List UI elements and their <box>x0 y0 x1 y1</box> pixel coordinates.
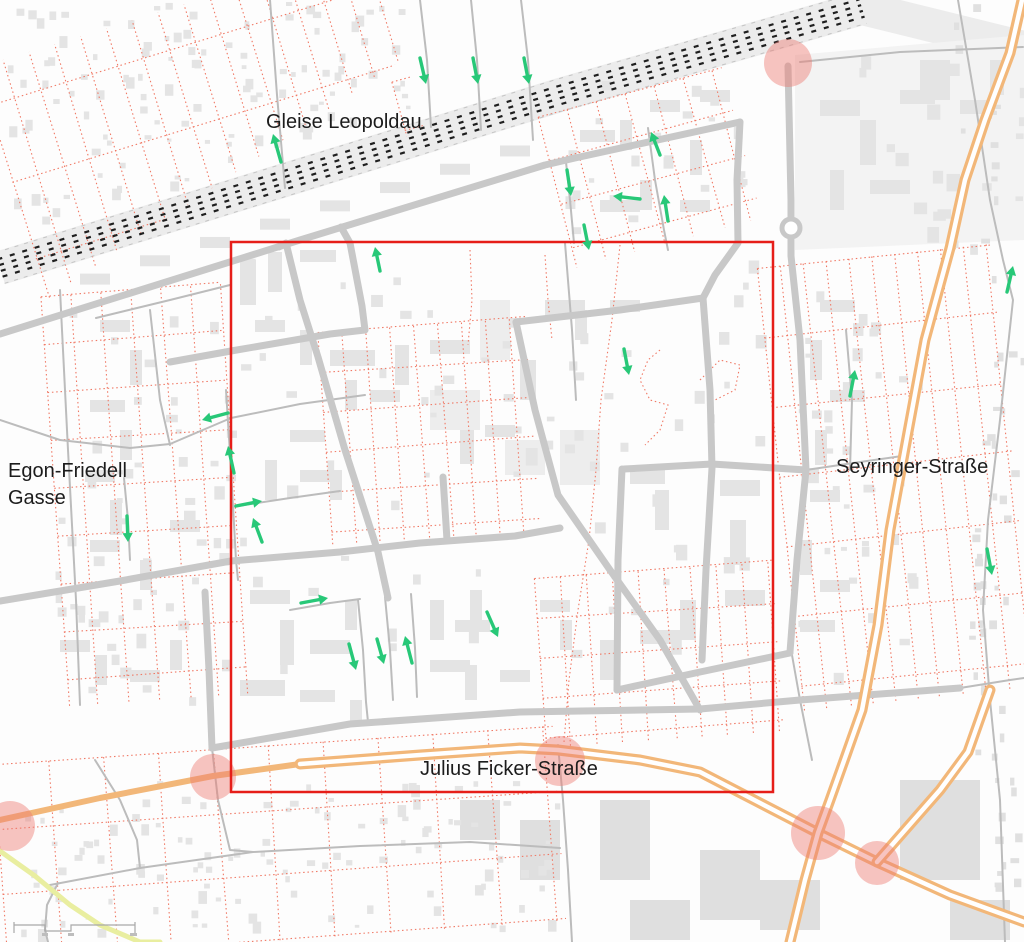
small-building <box>192 60 200 68</box>
small-building <box>32 194 41 206</box>
tree-plot <box>991 176 997 181</box>
major-road <box>702 298 712 660</box>
small-building <box>265 316 273 324</box>
scale-bar-label-mark <box>130 933 137 936</box>
small-building <box>84 111 89 119</box>
building <box>60 640 90 652</box>
building-large <box>505 440 545 475</box>
small-building <box>805 338 811 344</box>
small-building <box>328 798 333 802</box>
building <box>560 620 572 650</box>
small-building <box>150 590 157 595</box>
tree-plot <box>995 837 1004 845</box>
building <box>110 500 122 535</box>
small-building <box>834 301 844 308</box>
small-building <box>255 135 263 146</box>
flow-arrow-head <box>660 195 670 205</box>
small-building <box>367 905 373 914</box>
small-building <box>937 209 951 218</box>
street-label-gleise-leopoldau: Gleise Leopoldau <box>266 112 422 133</box>
small-building <box>193 924 198 927</box>
intersection-marker <box>190 754 236 800</box>
small-building <box>170 316 179 327</box>
flow-arrow-head <box>985 565 995 575</box>
flow-arrow-shaft <box>377 256 380 271</box>
small-building <box>260 353 266 361</box>
tree-plot <box>1009 351 1018 357</box>
small-building <box>546 841 551 845</box>
tree-plot <box>981 239 990 244</box>
major-road <box>516 298 703 322</box>
small-building <box>185 178 190 181</box>
small-building <box>589 178 594 182</box>
building <box>370 390 400 402</box>
small-building <box>182 121 190 127</box>
small-building <box>614 204 622 212</box>
small-building <box>948 64 960 76</box>
small-building <box>98 855 105 863</box>
flow-arrow-shaft <box>665 204 668 221</box>
footpath-layer <box>0 851 160 942</box>
small-building <box>834 673 844 685</box>
tree-plot <box>992 441 996 449</box>
building <box>268 252 282 292</box>
small-building <box>341 282 346 289</box>
small-building <box>178 621 189 631</box>
parcel-line <box>0 0 400 106</box>
small-building <box>94 556 105 566</box>
small-building <box>286 391 297 398</box>
small-building <box>402 784 408 792</box>
small-building <box>25 120 32 131</box>
flow-arrow-shaft <box>987 549 990 566</box>
small-building <box>322 862 328 868</box>
tree-plot <box>995 883 1002 888</box>
small-building <box>34 883 40 888</box>
small-building <box>643 192 648 197</box>
parcel-line <box>545 720 785 739</box>
small-building <box>245 79 253 89</box>
flow-arrow-head <box>622 365 632 375</box>
small-building <box>8 65 14 73</box>
small-building <box>852 101 859 107</box>
flow-arrow-shaft <box>420 58 424 75</box>
small-building <box>117 186 122 193</box>
small-building <box>193 867 198 872</box>
small-building <box>53 208 61 217</box>
small-building <box>663 579 670 585</box>
small-building <box>504 801 512 806</box>
small-building <box>69 91 74 97</box>
small-building <box>485 870 494 882</box>
small-building <box>264 802 273 808</box>
building <box>395 345 409 385</box>
flow-arrow-shaft <box>256 526 262 542</box>
building <box>440 164 470 175</box>
tree-plot <box>973 4 981 12</box>
small-building <box>555 803 560 809</box>
tree-plot <box>1010 858 1019 863</box>
small-building <box>887 144 895 152</box>
small-building <box>302 65 307 72</box>
small-building <box>154 6 160 10</box>
small-building <box>825 548 831 554</box>
building <box>310 640 350 654</box>
building <box>330 470 342 500</box>
building <box>630 470 665 484</box>
small-building <box>200 802 206 809</box>
parcel-line <box>377 738 391 933</box>
tree-plot <box>970 621 975 629</box>
tree-plot <box>975 750 981 756</box>
small-building <box>280 663 287 674</box>
tree-plot <box>954 23 959 30</box>
building-large <box>480 300 510 360</box>
small-building <box>143 799 151 807</box>
building <box>280 620 294 665</box>
small-building <box>371 295 383 307</box>
small-building <box>933 171 943 184</box>
small-building <box>202 923 207 927</box>
building <box>430 340 470 354</box>
small-building <box>145 135 152 139</box>
small-building <box>189 697 196 706</box>
minor-road <box>96 285 230 318</box>
small-building <box>214 538 221 548</box>
small-building <box>253 922 261 934</box>
small-building <box>96 545 108 552</box>
small-building <box>575 430 584 441</box>
intersection-marker <box>855 841 899 885</box>
small-building <box>743 283 749 290</box>
small-building <box>107 644 116 651</box>
parcel-line <box>161 288 191 697</box>
small-building <box>355 16 364 27</box>
small-building <box>1015 196 1023 201</box>
small-building <box>291 72 296 77</box>
small-building <box>424 826 432 832</box>
small-building <box>812 410 822 418</box>
building <box>140 255 170 266</box>
building <box>460 430 474 464</box>
flow-arrow-shaft <box>584 225 587 241</box>
small-building <box>443 376 454 384</box>
parcel-meander <box>468 250 472 345</box>
building <box>95 655 107 685</box>
tree-plot <box>972 535 980 543</box>
tree-plot <box>994 586 998 591</box>
parcel-line <box>321 742 336 937</box>
flow-arrow-head <box>471 74 481 84</box>
small-building <box>692 86 702 97</box>
tree-plot <box>987 434 995 441</box>
parcel-meander <box>545 255 552 340</box>
small-building <box>739 557 749 570</box>
small-building <box>859 314 868 326</box>
building <box>580 130 615 142</box>
small-building <box>827 448 833 453</box>
small-building <box>427 310 433 318</box>
building <box>830 390 865 402</box>
small-building <box>229 134 235 138</box>
small-building <box>184 511 196 527</box>
small-building <box>824 410 832 422</box>
small-building <box>427 891 434 898</box>
small-building <box>338 66 344 74</box>
small-building <box>211 461 219 467</box>
small-building <box>400 311 411 319</box>
small-building <box>513 781 520 786</box>
small-building <box>539 885 544 891</box>
small-building <box>43 198 48 203</box>
small-building <box>178 837 183 842</box>
small-building <box>280 69 287 74</box>
small-building <box>156 823 161 827</box>
map: Gleise LeopoldauEgon-FriedellGasseSeyrin… <box>0 0 1024 942</box>
building <box>345 380 357 410</box>
small-building <box>111 827 117 836</box>
small-building <box>182 797 191 804</box>
small-building <box>604 393 613 399</box>
tree-plot <box>975 559 983 567</box>
flow-arrow-shaft <box>407 645 412 663</box>
small-building <box>469 629 479 643</box>
building <box>265 460 277 500</box>
building <box>720 480 760 496</box>
minor-road <box>565 243 576 400</box>
intersection-marker <box>764 39 812 87</box>
small-building <box>896 153 909 166</box>
small-building <box>201 49 206 55</box>
small-building <box>193 104 201 112</box>
parcel-line <box>786 520 1020 546</box>
building <box>870 180 910 194</box>
small-building <box>1016 133 1024 139</box>
small-building <box>77 606 85 615</box>
small-building <box>361 38 368 45</box>
small-building <box>674 545 683 552</box>
small-building <box>816 291 824 302</box>
small-building <box>17 9 25 16</box>
small-building <box>695 391 705 404</box>
small-building <box>862 547 869 557</box>
building <box>290 430 325 442</box>
small-building <box>241 364 251 370</box>
footpath <box>0 851 160 942</box>
small-building <box>138 871 145 878</box>
small-building <box>448 819 452 825</box>
small-building <box>186 838 193 845</box>
small-building <box>179 457 188 467</box>
building <box>345 600 357 630</box>
small-building <box>59 36 67 48</box>
street-label-egon-friedell: Egon-Friedell <box>8 461 127 482</box>
small-building <box>103 21 110 27</box>
small-building <box>137 634 147 649</box>
small-building <box>183 30 191 39</box>
building <box>100 320 130 332</box>
small-building <box>190 12 198 20</box>
small-building <box>805 354 810 358</box>
small-building <box>94 840 99 847</box>
small-building <box>140 106 147 113</box>
small-building <box>228 856 233 861</box>
intersection-marker <box>791 806 845 860</box>
small-building <box>37 18 45 28</box>
small-building <box>833 173 840 179</box>
small-building <box>89 619 101 627</box>
small-building <box>576 372 584 380</box>
small-building <box>908 573 917 583</box>
parcel-line <box>585 575 598 745</box>
small-building <box>355 925 359 928</box>
tree-plot <box>1011 470 1020 477</box>
tree-plot <box>969 636 976 640</box>
tree-plot <box>1015 833 1022 842</box>
small-building <box>471 823 478 827</box>
small-building <box>166 603 174 611</box>
small-building <box>871 322 881 334</box>
small-building <box>734 295 743 307</box>
small-building <box>315 28 320 35</box>
building <box>540 600 570 612</box>
small-building <box>145 360 156 368</box>
flow-arrow-shaft <box>473 58 476 75</box>
small-building <box>400 81 405 87</box>
building <box>500 670 530 682</box>
small-building <box>379 857 388 864</box>
small-building <box>631 156 639 167</box>
small-building <box>392 45 400 54</box>
building <box>470 590 482 620</box>
small-building <box>547 417 555 422</box>
small-building <box>434 906 441 916</box>
small-building <box>135 463 142 468</box>
small-building <box>291 891 297 898</box>
small-building <box>519 905 525 913</box>
building <box>920 60 950 100</box>
building <box>600 640 614 680</box>
small-building <box>313 12 321 18</box>
small-building <box>724 382 729 389</box>
parcel-meander <box>640 350 668 445</box>
building <box>380 182 410 193</box>
building-large <box>430 390 480 430</box>
street-label-seyringer-strasse: Seyringer-Straße <box>836 457 988 478</box>
small-building <box>93 441 103 454</box>
small-building <box>42 217 50 225</box>
tree-plot <box>992 162 1000 169</box>
small-building <box>58 607 67 616</box>
small-building <box>393 277 401 285</box>
scale-bar-label-mark <box>42 933 48 936</box>
small-building <box>96 90 104 99</box>
building <box>90 400 125 412</box>
small-building <box>844 504 850 508</box>
small-building <box>416 847 422 853</box>
small-building <box>859 68 866 78</box>
building <box>170 640 182 670</box>
building <box>260 219 290 230</box>
tree-plot <box>1000 496 1007 505</box>
flow-arrow-head <box>349 660 359 670</box>
building <box>300 250 336 262</box>
tree-plot <box>974 672 978 680</box>
small-building <box>216 897 221 901</box>
tree-plot <box>997 871 1002 876</box>
street-label-julius-ficker-strasse: Julius Ficker-Straße <box>420 759 598 780</box>
building <box>130 670 160 682</box>
small-building <box>391 501 399 511</box>
small-building <box>724 557 735 573</box>
small-building <box>927 105 940 120</box>
small-building <box>489 844 494 850</box>
small-building <box>240 538 247 547</box>
parcel-line <box>826 261 873 704</box>
small-building <box>153 907 158 914</box>
small-building <box>498 856 504 863</box>
street-label-egon-friedell-2: Gasse <box>8 488 66 509</box>
small-building <box>927 227 939 243</box>
building <box>300 690 335 702</box>
small-building <box>141 824 149 835</box>
small-building <box>876 372 882 378</box>
small-building <box>20 80 26 88</box>
small-building <box>709 117 715 121</box>
small-building <box>98 173 103 178</box>
small-building <box>226 42 233 48</box>
small-building <box>286 14 294 20</box>
small-building <box>333 853 341 860</box>
small-building <box>862 541 869 546</box>
small-building <box>242 65 247 69</box>
small-building <box>266 859 273 864</box>
small-building <box>394 86 401 92</box>
building <box>500 145 530 156</box>
small-building <box>132 814 140 822</box>
parcel-line <box>414 326 430 541</box>
small-building <box>210 322 219 334</box>
small-building <box>1020 88 1024 98</box>
tree-plot <box>1000 733 1004 742</box>
small-building <box>319 102 324 105</box>
tree-plot <box>994 362 998 368</box>
tree-plot <box>1021 358 1024 365</box>
small-building <box>526 448 538 466</box>
small-building <box>174 33 182 43</box>
building <box>300 470 330 482</box>
building <box>120 430 132 460</box>
small-building <box>88 687 96 693</box>
building <box>465 665 477 700</box>
small-building <box>279 89 286 97</box>
tree-plot <box>1014 879 1021 888</box>
small-building <box>154 120 159 124</box>
small-building <box>430 413 436 418</box>
building <box>860 120 876 165</box>
small-building <box>185 498 195 505</box>
minor-road <box>411 594 417 697</box>
small-building <box>413 574 421 584</box>
small-building <box>250 95 257 102</box>
small-building <box>143 685 152 692</box>
small-building <box>235 899 241 904</box>
small-building <box>40 818 44 824</box>
parcel-line <box>637 571 650 741</box>
small-building <box>112 655 120 665</box>
small-building <box>92 149 101 156</box>
parcel-line <box>392 42 537 82</box>
